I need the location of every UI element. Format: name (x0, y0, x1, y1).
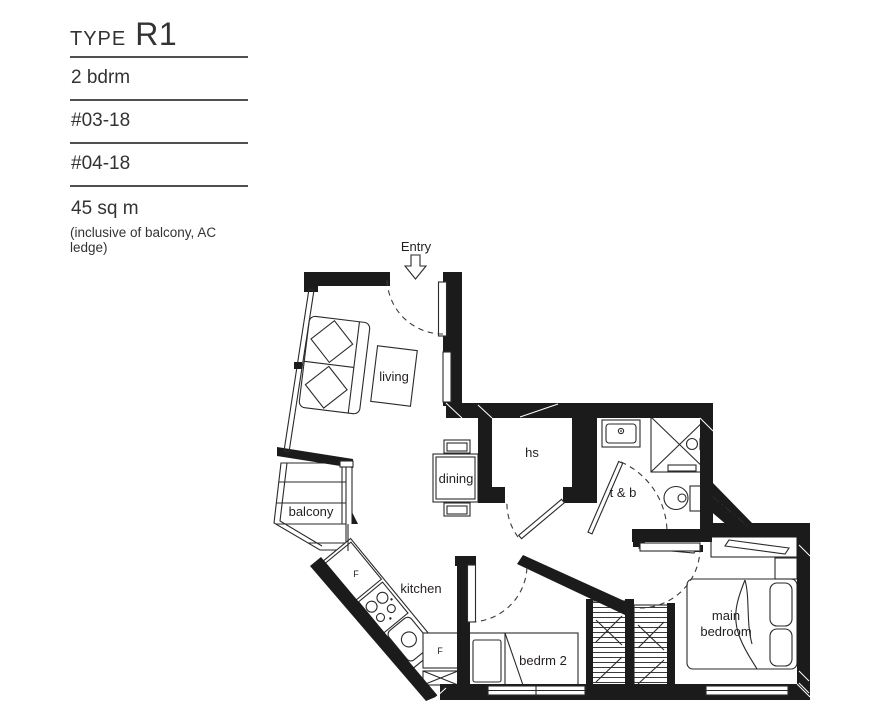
room-label-living: living (379, 369, 409, 384)
room-label-dining: dining (439, 471, 474, 486)
room-label-toilet-bath: t & b (610, 485, 637, 500)
room-label-kitchen: kitchen (400, 581, 441, 596)
bedside-table (775, 558, 797, 579)
fridge-label-2: F (437, 646, 443, 656)
shaft-box (423, 671, 458, 685)
balcony-window (340, 461, 358, 551)
main-bedroom-window (706, 686, 788, 695)
entry-door (387, 278, 443, 334)
bedroom2-door (468, 565, 528, 622)
room-label-balcony: balcony (289, 504, 334, 519)
floor-plan: Entry living dining hs t & b balcony kit… (0, 0, 874, 720)
fridge-label-1: F (353, 569, 359, 579)
room-label-main-bedroom-1: main (712, 608, 740, 623)
kitchen-counter (322, 539, 439, 671)
floorplan-page: TYPE R1 2 bdrm #03-18 #04-18 45 sq m (in… (0, 0, 874, 720)
shower (651, 417, 708, 472)
bedroom2-window (488, 686, 585, 695)
hs-door (507, 499, 564, 538)
toilet-icon (664, 486, 702, 511)
vanity-sink (602, 420, 640, 447)
room-label-hs: hs (525, 445, 539, 460)
room-label-main-bedroom-2: bedroom (700, 624, 751, 639)
wall-cabinet-slot (443, 352, 451, 402)
entry-label: Entry (401, 239, 432, 254)
entry-arrow-icon (405, 255, 426, 279)
entry-door-leaf (439, 282, 447, 336)
room-label-bedroom2: bedrm 2 (519, 653, 567, 668)
sofa (299, 316, 371, 415)
